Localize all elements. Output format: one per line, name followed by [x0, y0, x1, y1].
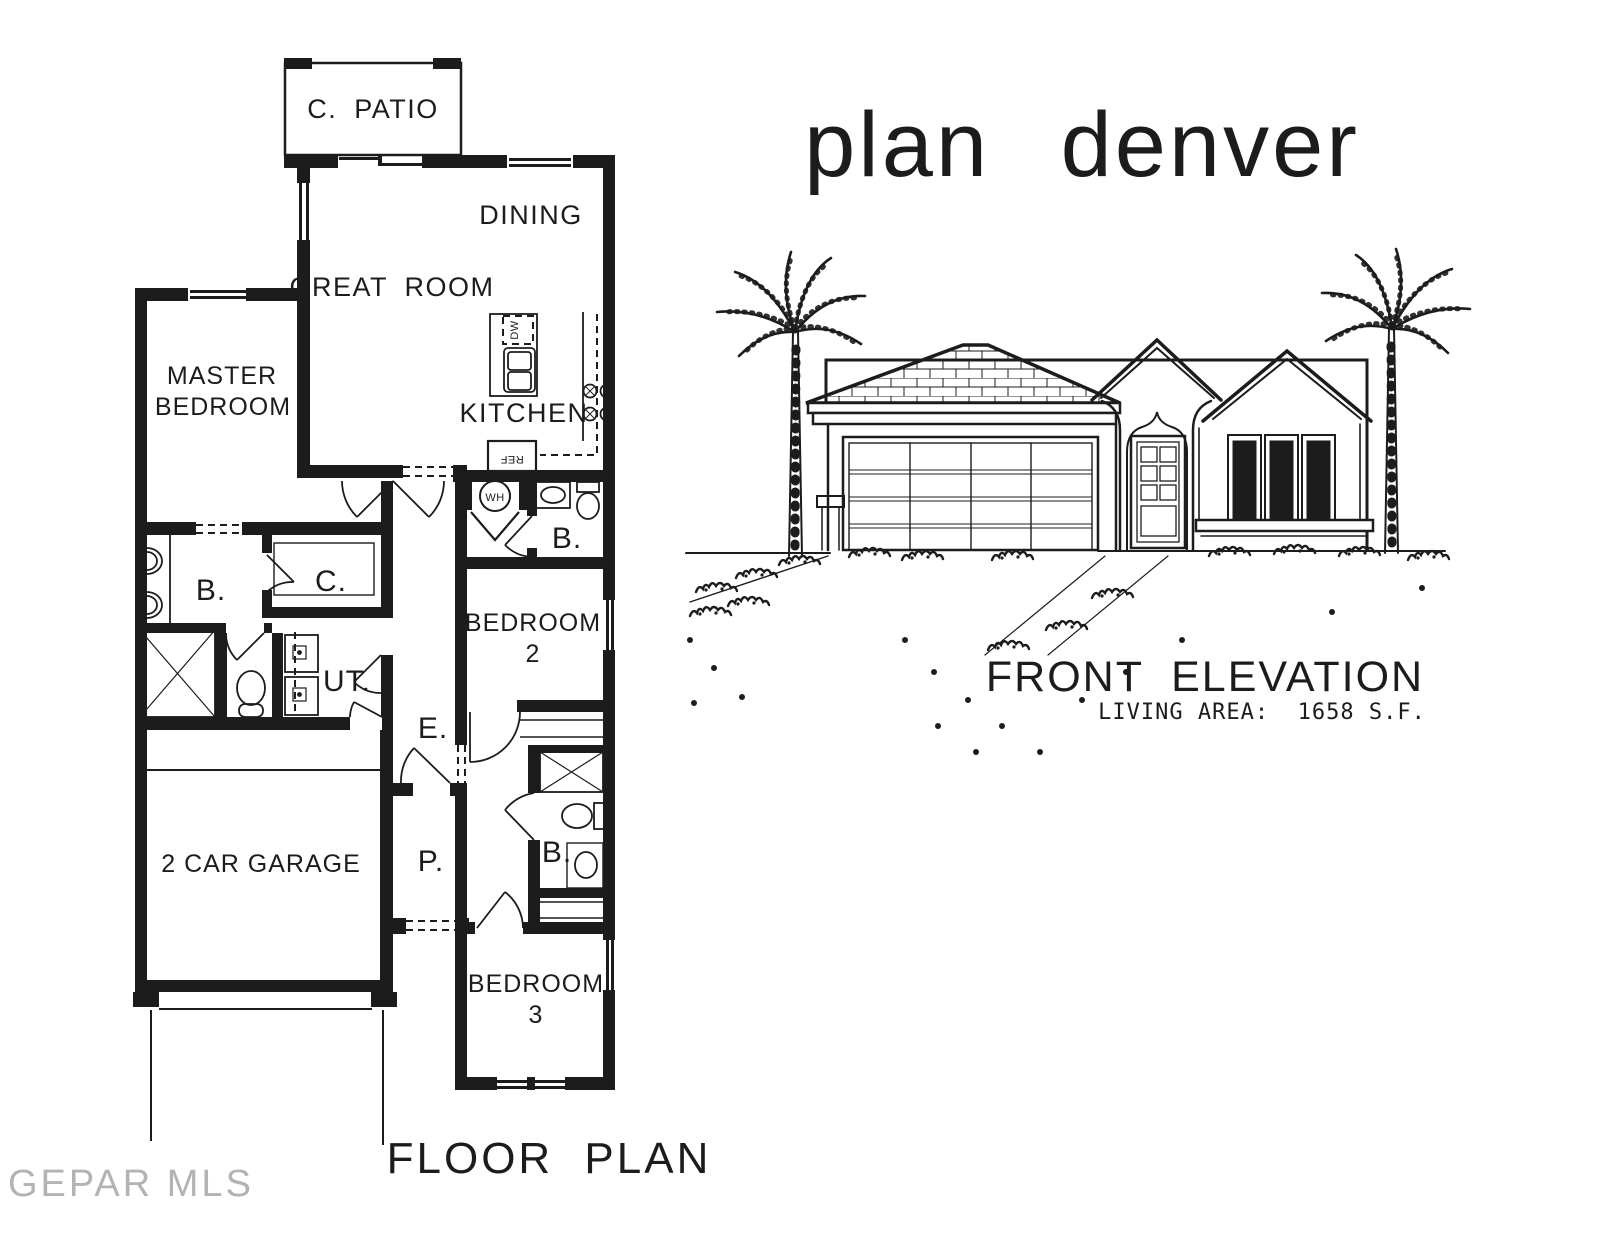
elevation-ground [686, 550, 1445, 655]
hall-bath-toilet [577, 482, 599, 492]
label-refrigerator: REF [500, 453, 524, 465]
elevation-right-wing [1196, 351, 1373, 536]
room-label-bath2: B. [542, 836, 572, 869]
master-toilet [237, 671, 265, 705]
watermark: GEPAR MLS [8, 1163, 254, 1205]
elevation-garage-door [843, 437, 1098, 550]
front-elevation: FRONT ELEVATION LIVING AREA: 1658 S.F. [686, 249, 1470, 755]
palm-tree-right [1322, 249, 1470, 553]
plan-drawing: C. PATIO DINING GREAT ROOM MASTER BEDROO… [0, 0, 1600, 1236]
room-label-dining: DINING [479, 200, 583, 230]
master-sink-1 [147, 548, 162, 574]
room-label-master-1: MASTER [167, 362, 277, 390]
label-water-heater: WH [485, 492, 504, 504]
room-label-great-room: GREAT ROOM [289, 272, 494, 302]
elevation-shrubs [690, 545, 1449, 650]
bath2-sink [575, 852, 597, 878]
bedroom2-closet-shelf [520, 720, 603, 737]
label-dishwasher: DW [509, 320, 521, 339]
living-area-label: LIVING AREA: 1658 S.F. [1098, 700, 1426, 725]
room-label-closet: C. [315, 565, 347, 598]
elevation-entry [1092, 340, 1221, 550]
room-label-bedroom2-2: 2 [526, 640, 541, 668]
room-label-hall-bath: B. [552, 522, 582, 555]
elevation-cornice [808, 403, 1120, 413]
room-label-master-bath: B. [196, 574, 226, 607]
floor-plan: C. PATIO DINING GREAT ROOM MASTER BEDROO… [133, 58, 711, 1183]
master-sink-2 [147, 592, 162, 618]
room-label-bedroom3-2: 3 [529, 1001, 544, 1029]
room-label-patio: C. PATIO [307, 94, 439, 124]
elevation-window-glass [1233, 441, 1256, 522]
bath2-toilet [562, 804, 592, 828]
room-label-bedroom2-1: BEDROOM [465, 609, 601, 637]
room-label-master-2: BEDROOM [155, 393, 291, 421]
room-label-kitchen: KITCHEN [459, 398, 588, 428]
room-label-garage: 2 CAR GARAGE [161, 850, 361, 878]
page-title: plan denver [804, 94, 1360, 196]
washer-dryer [285, 635, 318, 715]
elevation-roof [806, 345, 1120, 403]
room-label-entry: E. [418, 712, 448, 745]
room-label-utility: UT. [323, 665, 371, 698]
plan-sheet: C. PATIO DINING GREAT ROOM MASTER BEDROO… [0, 0, 1600, 1236]
elevation-caption: FRONT ELEVATION [986, 653, 1424, 701]
floor-plan-caption: FLOOR PLAN [387, 1134, 712, 1183]
room-label-bedroom3-1: BEDROOM [468, 970, 604, 998]
elevation-front-door [1131, 436, 1185, 548]
room-label-porch: P. [418, 845, 444, 878]
bedroom3-closet-shelf [535, 902, 603, 918]
elevation-window-glass [1307, 441, 1330, 522]
elevation-window-glass [1270, 441, 1293, 522]
